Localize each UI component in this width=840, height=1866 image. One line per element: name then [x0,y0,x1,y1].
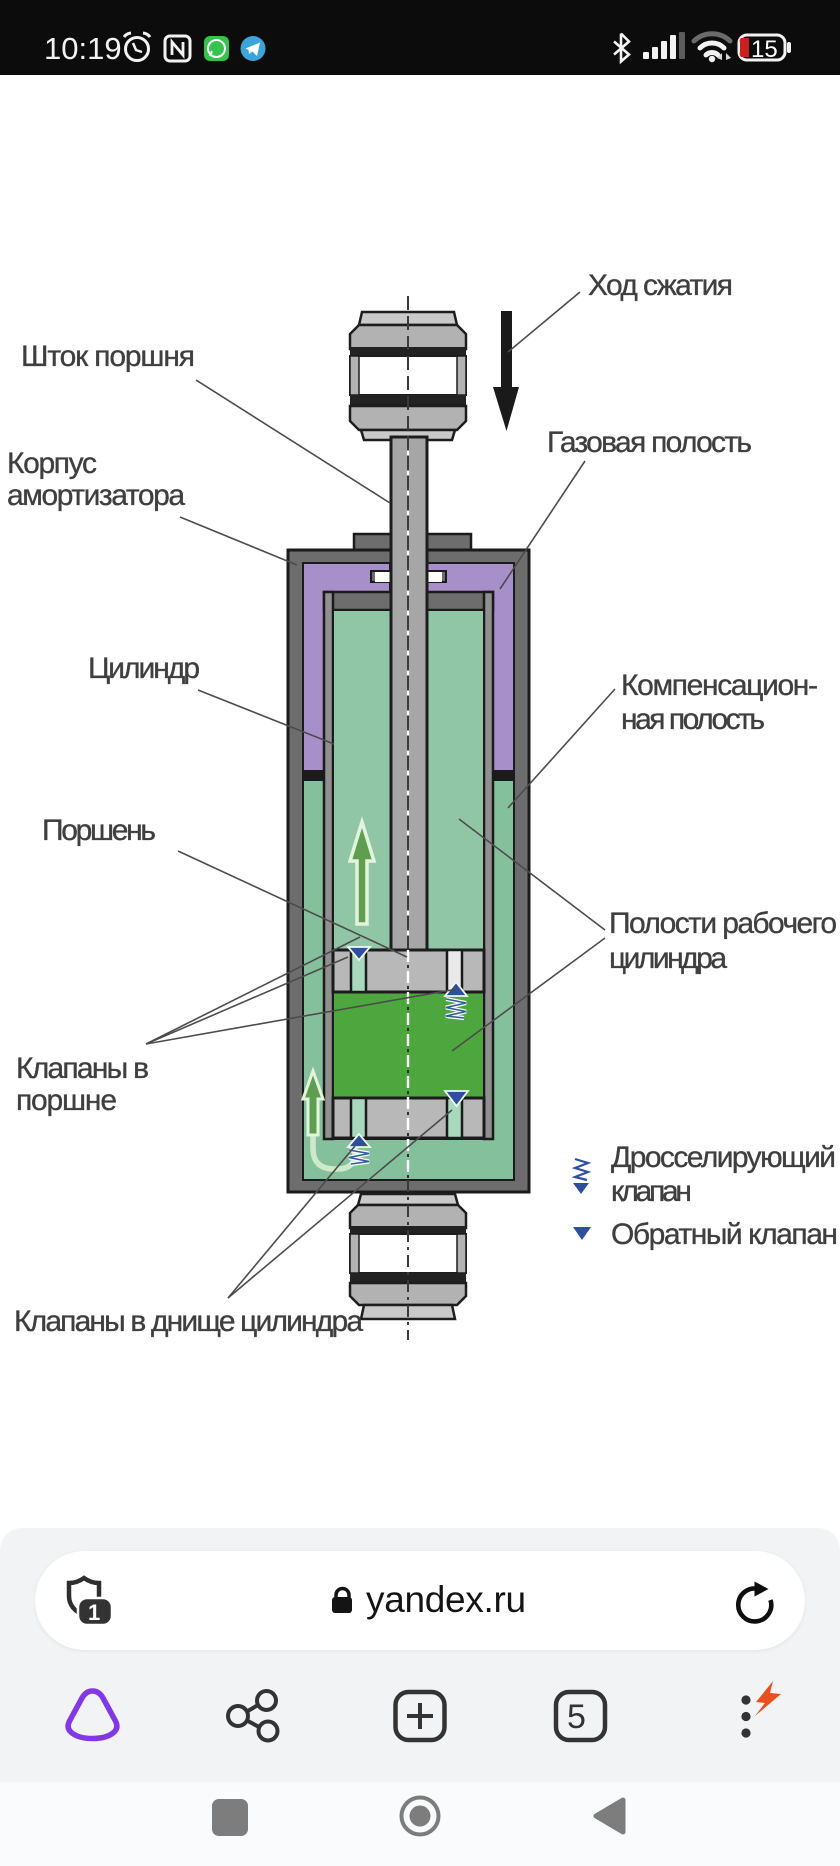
svg-text:Ход сжатия: Ход сжатия [588,269,733,302]
svg-text:5: 5 [567,1698,586,1736]
svg-text:Газовая полость: Газовая полость [547,426,752,459]
svg-text:Цилиндр: Цилиндр [88,652,200,685]
svg-text:цилиндра: цилиндра [609,942,727,975]
svg-text:15: 15 [751,36,778,63]
svg-text:амортизатора: амортизатора [7,479,185,512]
svg-text:Клапаны в: Клапаны в [16,1052,149,1085]
svg-text:клапан: клапан [611,1175,692,1208]
svg-text:Корпус: Корпус [7,447,97,480]
svg-text:Поршень: Поршень [42,814,156,847]
svg-text:поршне: поршне [16,1084,117,1117]
svg-text:1: 1 [88,1600,100,1625]
svg-text:Дросселирующий: Дросселирующий [611,1141,836,1174]
svg-text:Шток поршня: Шток поршня [21,340,195,373]
svg-text:Компенсацион-: Компенсацион- [621,669,818,702]
svg-text:Обратный клапан: Обратный клапан [611,1218,838,1251]
svg-text:Клапаны в днище цилиндра: Клапаны в днище цилиндра [14,1305,363,1338]
svg-text:ная полость: ная полость [621,703,765,736]
svg-text:Полости рабочего: Полости рабочего [609,907,837,940]
